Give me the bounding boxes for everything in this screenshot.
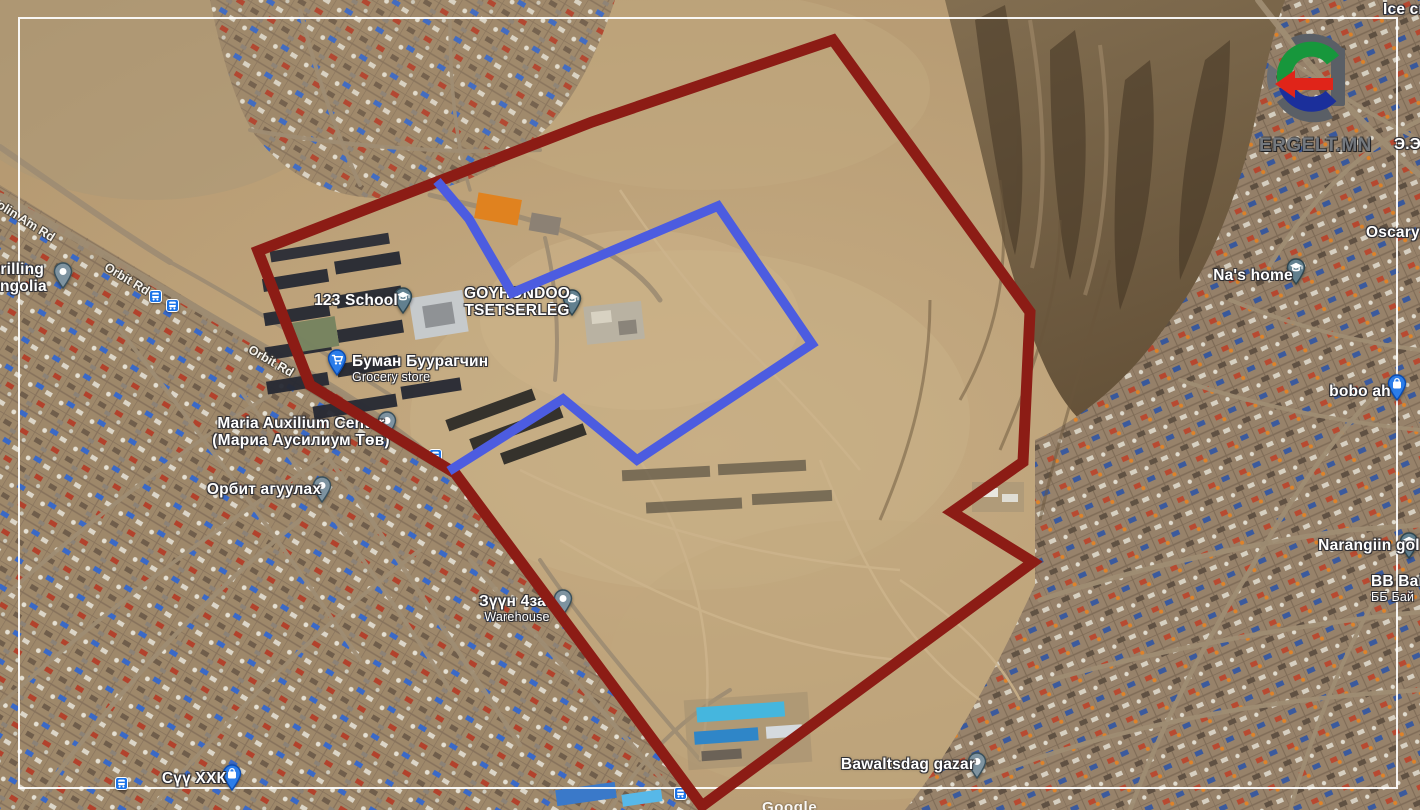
poi-label[interactable]: Oscaryn bbox=[1366, 224, 1420, 241]
poi-label[interactable]: GOYHONDOOTSETSERLEG bbox=[464, 285, 570, 319]
dot-pin[interactable] bbox=[553, 589, 573, 616]
road-label: Orbit Rd bbox=[246, 342, 296, 379]
google-watermark: Google bbox=[762, 799, 817, 810]
road-label: Orbit Rd bbox=[102, 260, 152, 298]
bus-stop-icon[interactable] bbox=[166, 299, 179, 312]
poi-label[interactable]: i DrillingMongolia bbox=[0, 261, 47, 295]
dot-pin[interactable] bbox=[53, 262, 73, 289]
poi-label[interactable]: Буман БуурагчинGrocery store bbox=[352, 353, 488, 385]
map-labels-layer: olin Am RdOrbit RdOrbit Rdi DrillingMong… bbox=[0, 0, 1420, 810]
poi-label[interactable]: Э.Эр bbox=[1394, 136, 1420, 153]
poi-label[interactable]: 123 School bbox=[314, 292, 398, 309]
poi-label[interactable]: Орбит агуулах bbox=[207, 481, 321, 498]
satellite-map-view: olin Am RdOrbit RdOrbit Rdi DrillingMong… bbox=[0, 0, 1420, 810]
bus-stop-icon[interactable] bbox=[149, 290, 162, 303]
poi-label[interactable]: Bawaltsdag gazar bbox=[841, 756, 975, 773]
ergelt-logo-mark bbox=[1261, 24, 1361, 128]
bus-stop-icon[interactable] bbox=[429, 449, 442, 462]
poi-label[interactable]: Na's home bbox=[1213, 267, 1293, 284]
road-label: olin Am Rd bbox=[0, 198, 57, 245]
poi-label[interactable]: bobo ah bbox=[1329, 383, 1391, 400]
poi-label[interactable]: Maria Auxilium Center(Мариа Аусилиум Төв… bbox=[212, 415, 390, 449]
poi-label[interactable]: Narangiin gol bbox=[1318, 537, 1420, 554]
poi-label[interactable]: Зүүн 4за..Warehouse bbox=[479, 593, 555, 625]
poi-label[interactable]: Сүү ХХК bbox=[162, 770, 226, 787]
bus-stop-icon[interactable] bbox=[115, 777, 128, 790]
ergelt-logo: ERGELT.MN bbox=[1259, 24, 1363, 157]
poi-label[interactable]: ВВ ВайцББ Бай bbox=[1371, 573, 1420, 605]
cart-pin[interactable] bbox=[327, 349, 347, 376]
ergelt-logo-text: ERGELT.MN bbox=[1259, 135, 1363, 157]
poi-label[interactable]: Ice crea bbox=[1383, 1, 1420, 18]
bus-stop-icon[interactable] bbox=[674, 787, 687, 800]
